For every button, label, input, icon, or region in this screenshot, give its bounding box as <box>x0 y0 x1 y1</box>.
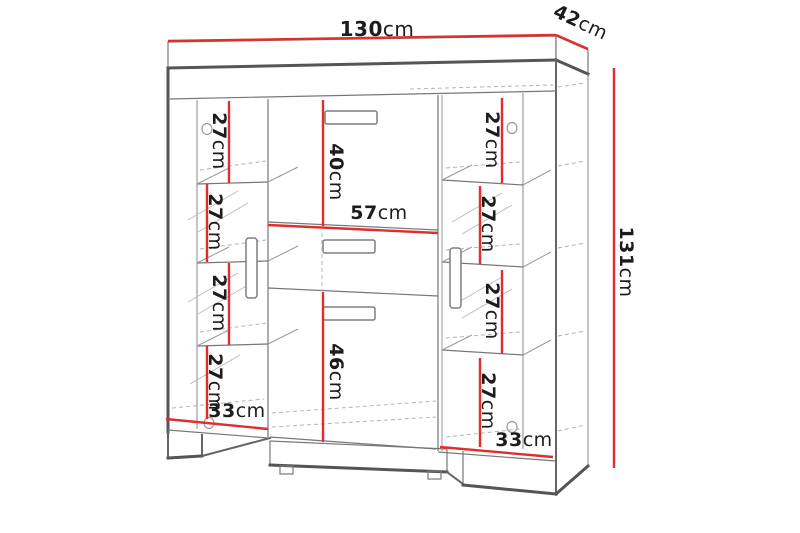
bottom-right-dimension-label: 33cm <box>495 429 552 451</box>
middle-drawer-handle <box>323 240 375 253</box>
right-shelf-gap-label-2: 27cm <box>477 195 499 252</box>
left-shelf-gap-label-2: 27cm <box>204 193 226 250</box>
left-foot <box>168 432 202 458</box>
right-shelf-2 <box>442 243 585 267</box>
height-dimension-label: 131cm <box>615 226 637 297</box>
middle-bottom-dimension-label: 46cm <box>325 343 347 400</box>
left-door-handle <box>246 238 257 298</box>
middle-width-dimension-label: 57cm <box>350 202 407 224</box>
right-shelf-gap-label-1: 27cm <box>481 111 503 168</box>
bottom-door-handle <box>323 307 375 320</box>
right-glass-door <box>442 123 585 438</box>
left-shelf-gap-label-3: 27cm <box>208 274 230 331</box>
top-drawer-handle <box>325 111 377 124</box>
cabinet-top-panel <box>168 36 588 74</box>
plinth-bottom <box>270 465 447 472</box>
cabinet-dimension-diagram: 130cm 42cm 131cm 27cm 27cm 27cm 27cm 27c… <box>0 0 800 533</box>
right-door-hinge-top <box>507 123 517 134</box>
right-foot <box>463 485 556 494</box>
middle-section <box>268 83 585 449</box>
left-shelf-gap-label-1: 27cm <box>208 112 230 169</box>
middle-top-dimension-label: 40cm <box>325 143 347 200</box>
right-shelf-gap-label-3: 27cm <box>481 282 503 339</box>
right-door-handle <box>450 248 461 308</box>
right-shelf-gap-label-4: 27cm <box>477 372 499 429</box>
diagram-canvas: 130cm 42cm 131cm 27cm 27cm 27cm 27cm 27c… <box>0 0 800 533</box>
left-glass-door <box>172 124 298 429</box>
bottom-left-dimension-label: 33cm <box>208 400 265 422</box>
right-shelf-1 <box>442 161 585 185</box>
width-dimension-label: 130cm <box>340 17 415 41</box>
right-shelf-3 <box>442 331 585 355</box>
